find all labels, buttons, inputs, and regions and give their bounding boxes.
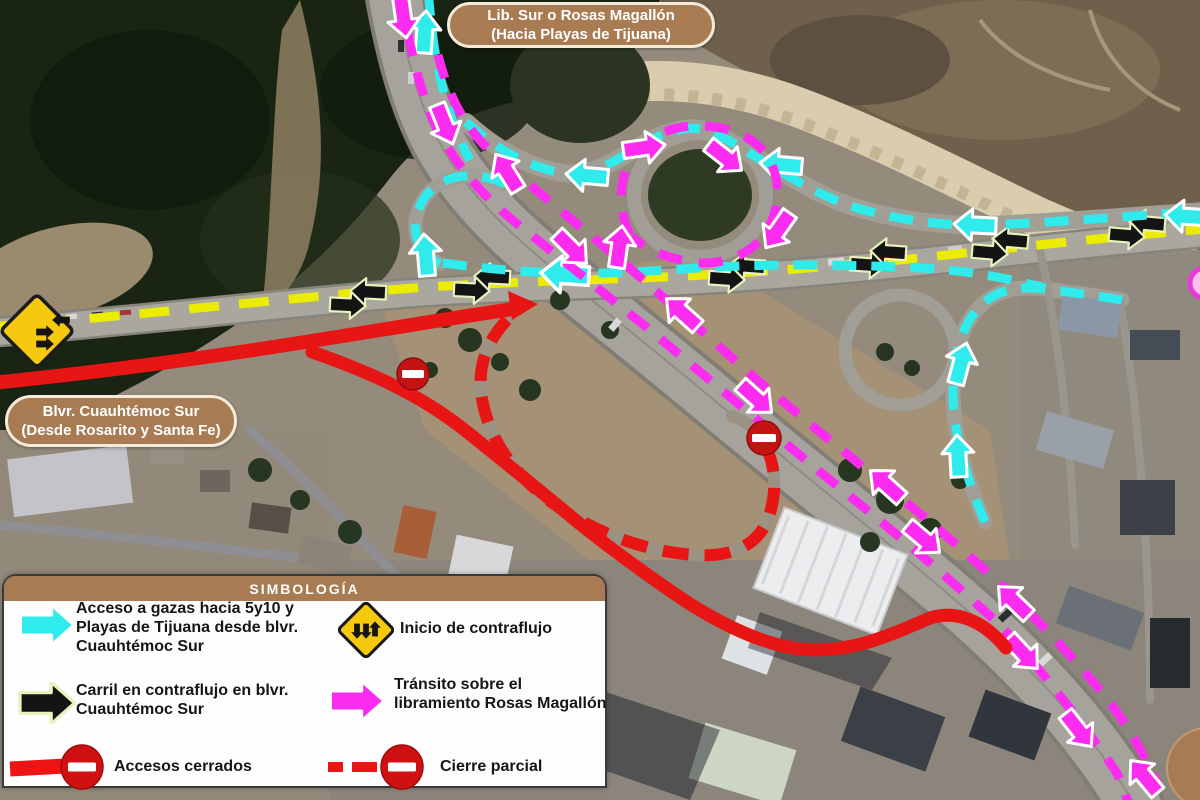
contraflow-start-sign-icon xyxy=(338,602,394,658)
no-entry-sign xyxy=(747,421,781,455)
legend-label-cierre-parcial: Cierre parcial xyxy=(440,758,542,777)
legend-label-transito-libramiento: Tránsito sobre el libramiento Rosas Maga… xyxy=(394,676,609,714)
no-entry-sign xyxy=(397,358,429,390)
closed-access-icon xyxy=(8,744,108,790)
legend-title: SIMBOLOGÍA xyxy=(4,576,605,601)
legend-label-acceso-gazas: Acceso a gazas hacia 5y10 y Playas de Ti… xyxy=(76,600,346,657)
legend-panel: SIMBOLOGÍA Acceso a gazas hacia 5y10 y P… xyxy=(2,574,607,788)
legend-label-inicio-contraflujo: Inicio de contraflujo xyxy=(400,620,552,639)
top-road-label: Lib. Sur o Rosas Magallón (Hacia Playas … xyxy=(447,2,715,48)
left-road-label: Blvr. Cuauhtémoc Sur (Desde Rosarito y S… xyxy=(5,395,237,447)
magenta-arrow-icon xyxy=(326,680,388,722)
legend-label-carril-contraflujo: Carril en contraflujo en blvr. Cuauhtémo… xyxy=(76,682,346,720)
edge-circle-magenta xyxy=(1190,268,1200,298)
black-arrow-icon xyxy=(16,682,78,724)
traffic-advisory-map: Lib. Sur o Rosas Magallón (Hacia Playas … xyxy=(0,0,1200,800)
legend-label-accesos-cerrados: Accesos cerrados xyxy=(114,758,252,777)
cyan-arrow-icon xyxy=(16,604,78,646)
partial-closure-icon xyxy=(326,744,430,790)
